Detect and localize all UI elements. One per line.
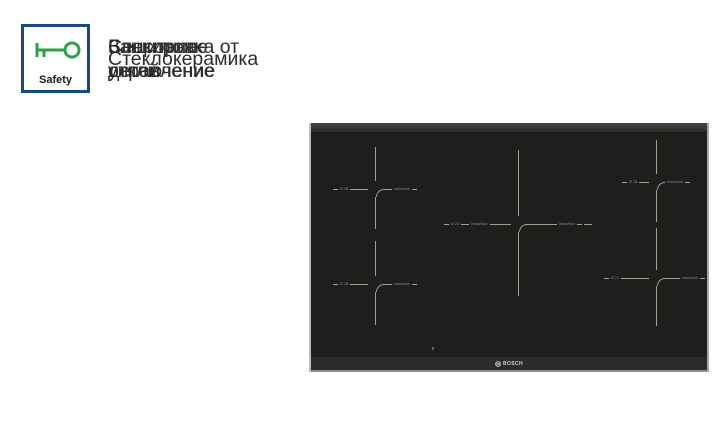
product-feature-sheet: CERAMIC Стеклокерамика AutoOff Защитное <box>0 0 720 441</box>
bosch-symbol-icon <box>495 361 501 367</box>
key-icon <box>26 30 85 70</box>
power-indicator-dot <box>432 347 434 350</box>
feature-row-safety: Safety Блокировка от детей <box>21 24 239 93</box>
zone-label: Ø 21 <box>451 222 459 226</box>
zone-label: induction <box>471 222 487 226</box>
bosch-logo-text: BOSCH <box>503 361 523 367</box>
zone-label: Ø 21 <box>611 276 619 280</box>
zone-label: Ø 18 <box>340 282 348 286</box>
feature-label-safety: Блокировка от детей <box>108 35 239 83</box>
zone-label: Ø 18 <box>340 187 348 191</box>
cooktop-rear-bezel <box>311 123 707 133</box>
zone-label: induction <box>394 187 410 191</box>
zone-label: induction <box>667 180 683 184</box>
safety-badge-label: Safety <box>39 74 72 86</box>
feature-list: CERAMIC Стеклокерамика AutoOff Защитное <box>21 24 306 424</box>
safety-badge: Safety <box>21 24 90 93</box>
cooktop-front-edge <box>311 370 707 372</box>
feature-label-line: детей <box>108 59 239 83</box>
cooktop-image: Ø 18 induction Ø 18 induction Ø 21induct… <box>309 123 709 372</box>
zone-label: induction <box>559 222 575 226</box>
cooktop-front-panel: BOSCH <box>311 357 707 370</box>
zone-label: induction <box>394 282 410 286</box>
bosch-logo: BOSCH <box>495 361 523 367</box>
feature-label-line: Блокировка от <box>108 35 239 59</box>
zone-label: induction <box>682 276 698 280</box>
zone-label: Ø 18 <box>629 180 637 184</box>
